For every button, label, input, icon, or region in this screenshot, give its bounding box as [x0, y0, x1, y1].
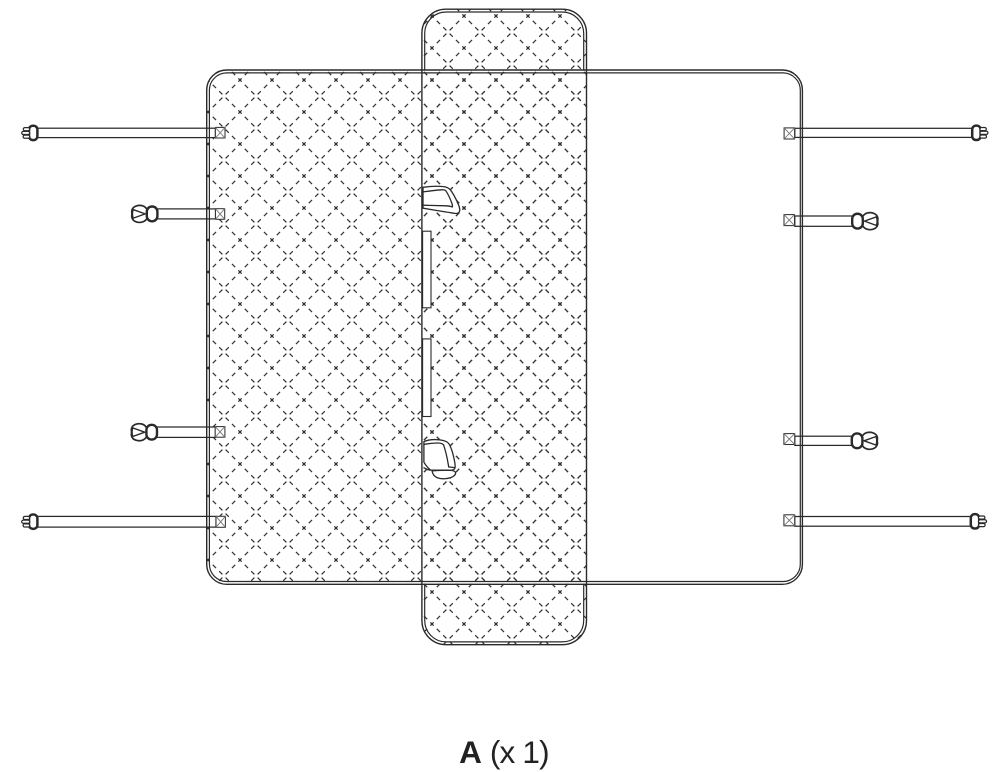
- svg-text:A (x 1): A (x 1): [459, 734, 549, 770]
